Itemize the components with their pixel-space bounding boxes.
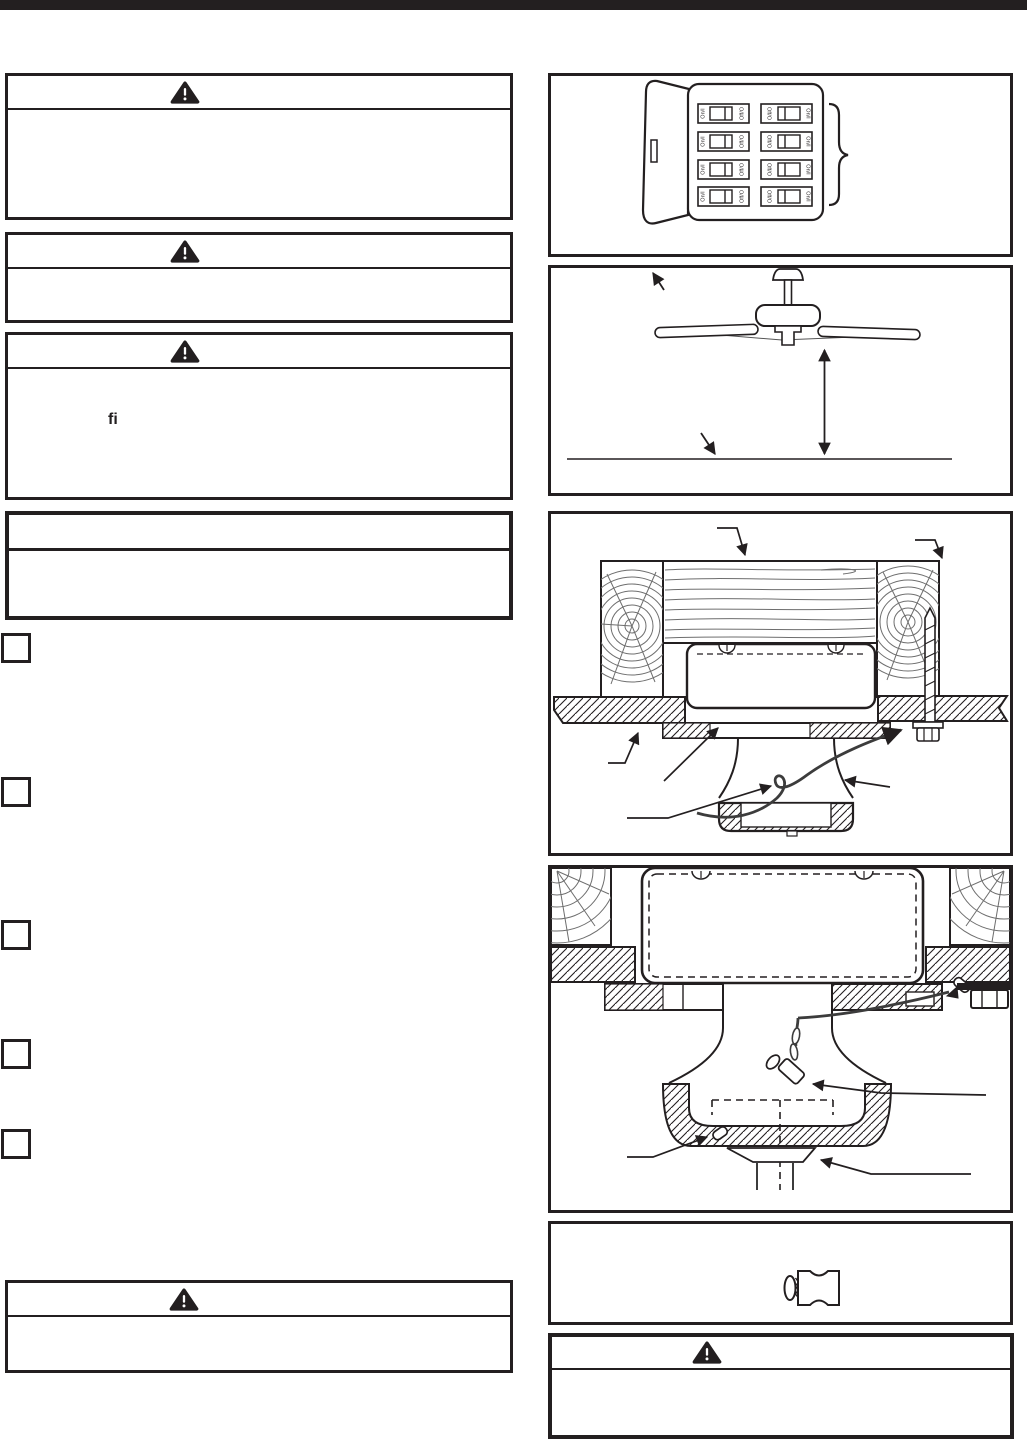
breaker-off-label: Off/O bbox=[766, 163, 772, 177]
warning-box-2-header bbox=[8, 235, 510, 269]
canopy-leader-arrow bbox=[821, 1160, 971, 1174]
brace-leader-arrow bbox=[717, 528, 745, 555]
breaker-off-label: Off/O bbox=[740, 189, 746, 203]
chain-link bbox=[791, 1028, 801, 1045]
ceiling-left bbox=[554, 697, 685, 723]
warning-triangle-icon bbox=[170, 340, 200, 363]
joists-brace-outlet-box-diagram bbox=[551, 514, 1010, 853]
lag-screw bbox=[925, 608, 935, 722]
breaker-on-label: On/I bbox=[701, 191, 707, 202]
door-handle-slot bbox=[651, 140, 657, 162]
cable-clamp bbox=[777, 1058, 805, 1085]
curly-brace bbox=[829, 104, 848, 205]
warning-box-3: fi bbox=[5, 332, 513, 500]
warning-box-1 bbox=[5, 73, 513, 220]
breaker-on-label: On/I bbox=[701, 136, 707, 147]
text-fragment: fi bbox=[108, 411, 118, 429]
breaker-on-label: On/I bbox=[805, 136, 811, 147]
warning-box-2 bbox=[5, 232, 513, 323]
breaker-on-label: On/I bbox=[805, 191, 811, 202]
fan-hub bbox=[775, 326, 801, 345]
warning-triangle-icon bbox=[169, 1288, 199, 1311]
breaker-off-label: Off/O bbox=[740, 162, 746, 176]
breaker-on-label: On/I bbox=[701, 164, 707, 175]
ceiling-left bbox=[551, 947, 635, 982]
bolt-washer-bar bbox=[957, 983, 1010, 990]
breaker-on-label: On/I bbox=[805, 108, 811, 119]
hex-bolt bbox=[971, 990, 1008, 1008]
warning-triangle-icon bbox=[170, 81, 200, 104]
step-checkbox-3 bbox=[1, 920, 31, 950]
warning-box-1-header bbox=[8, 76, 510, 110]
step-checkbox-4 bbox=[1, 1039, 31, 1069]
figure-bracket-cable bbox=[548, 865, 1013, 1213]
screw-nut bbox=[917, 728, 939, 741]
step-checkbox-2 bbox=[1, 777, 31, 807]
figure-breaker-panel: On/IOff/O On/IOff/O On/IOff/O On/IOff/O … bbox=[548, 73, 1013, 257]
downrod-lines bbox=[757, 1162, 793, 1190]
bracket-leader-arrow bbox=[845, 780, 890, 787]
breaker-off-label: Off/O bbox=[740, 106, 746, 120]
manual-page: fi bbox=[0, 0, 1027, 1442]
wire-connector-diagram bbox=[551, 1224, 1010, 1322]
figure-ceiling-fan bbox=[548, 265, 1013, 496]
bracket-trunk bbox=[669, 1010, 886, 1083]
bracket-cup bbox=[663, 1084, 891, 1146]
canopy bbox=[727, 1148, 815, 1162]
notice-box bbox=[5, 511, 513, 620]
warning-triangle-icon bbox=[692, 1341, 722, 1364]
fan-motor-housing bbox=[756, 305, 820, 326]
outlet-box bbox=[642, 868, 923, 983]
warning-box-bottom-left bbox=[5, 1280, 513, 1373]
ceiling-right bbox=[926, 947, 1010, 982]
breaker-off-label: Off/O bbox=[766, 107, 772, 121]
ceiling-leader-arrow bbox=[608, 733, 638, 763]
figure-wire-connector bbox=[548, 1221, 1013, 1325]
chain-link bbox=[789, 1044, 798, 1061]
connector-cap bbox=[785, 1276, 796, 1300]
bracket-cup-opening bbox=[741, 803, 831, 827]
screw-washer bbox=[913, 722, 943, 728]
screw-leader-arrow bbox=[915, 540, 942, 558]
warning-box-bottom-right-header bbox=[552, 1337, 1010, 1370]
fan-downrod bbox=[785, 280, 792, 305]
step-checkbox-1 bbox=[1, 633, 31, 663]
panel-door bbox=[643, 81, 689, 224]
warning-box-bottom-left-header bbox=[8, 1283, 510, 1317]
breaker-on-label: On/I bbox=[805, 164, 811, 175]
ceiling-right bbox=[878, 696, 1007, 721]
bracket-trunk bbox=[719, 738, 853, 798]
breaker-off-label: Off/O bbox=[740, 134, 746, 148]
page-top-rule bbox=[0, 0, 1027, 10]
circuit-breaker-panel-diagram: On/IOff/O On/IOff/O On/IOff/O On/IOff/O … bbox=[551, 76, 1010, 254]
breaker-off-label: Off/O bbox=[766, 190, 772, 204]
floor-leader-arrow bbox=[701, 433, 715, 454]
figure-brace-outlet-box bbox=[548, 511, 1013, 856]
fan-blade-left bbox=[655, 324, 758, 338]
fan-canopy bbox=[773, 269, 803, 280]
breaker-on-label: On/I bbox=[701, 108, 707, 119]
notice-box-header bbox=[9, 515, 509, 551]
clamp-leader-arrow bbox=[813, 1084, 986, 1095]
warning-box-bottom-right bbox=[548, 1333, 1014, 1439]
warning-box-3-header bbox=[8, 335, 510, 369]
ceiling-fan-floor-clearance-diagram bbox=[551, 268, 1010, 493]
ceiling-leader-arrow bbox=[653, 273, 664, 290]
connector-body bbox=[798, 1271, 839, 1305]
mounting-bracket-safety-cable-diagram bbox=[551, 868, 1010, 1210]
breaker-off-label: Off/O bbox=[766, 135, 772, 149]
warning-triangle-icon bbox=[170, 240, 200, 263]
step-checkbox-5 bbox=[1, 1129, 31, 1159]
